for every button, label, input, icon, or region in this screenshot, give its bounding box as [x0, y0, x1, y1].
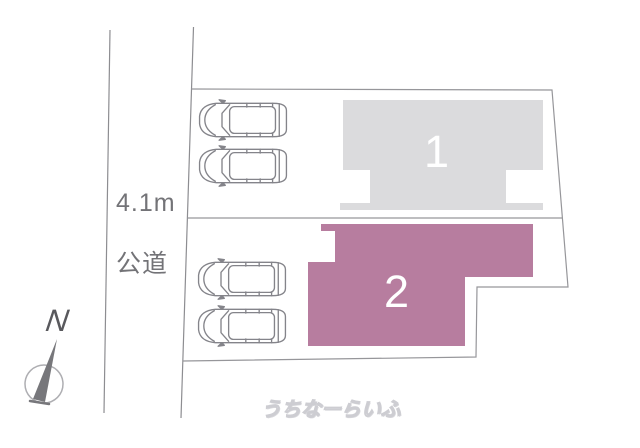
road-width-label: 4.1m: [116, 189, 176, 217]
brand-watermark: うちなーらいふ: [245, 393, 417, 422]
car-icon: [199, 306, 286, 346]
compass-needle: [33, 339, 57, 402]
road-left-edge: [104, 30, 110, 413]
road-type-label: 公道: [116, 250, 168, 278]
car-icon: [200, 100, 287, 140]
car-icon: [200, 146, 287, 186]
compass-needle-base: [30, 401, 49, 404]
parking-area-lot2: [199, 259, 286, 346]
road-label: 4.1m 公道: [116, 188, 176, 280]
compass: [25, 339, 63, 404]
parking-area-lot1: [200, 100, 287, 186]
lot-2-number: 2: [357, 266, 437, 318]
lot-1-number: 1: [397, 126, 477, 178]
car-icon: [199, 259, 286, 299]
site-plan-canvas: 1 2 4.1m 公道 N うちなーらいふ: [0, 0, 640, 448]
site-plan-drawing: [0, 0, 640, 448]
road-right-edge: [181, 27, 194, 418]
